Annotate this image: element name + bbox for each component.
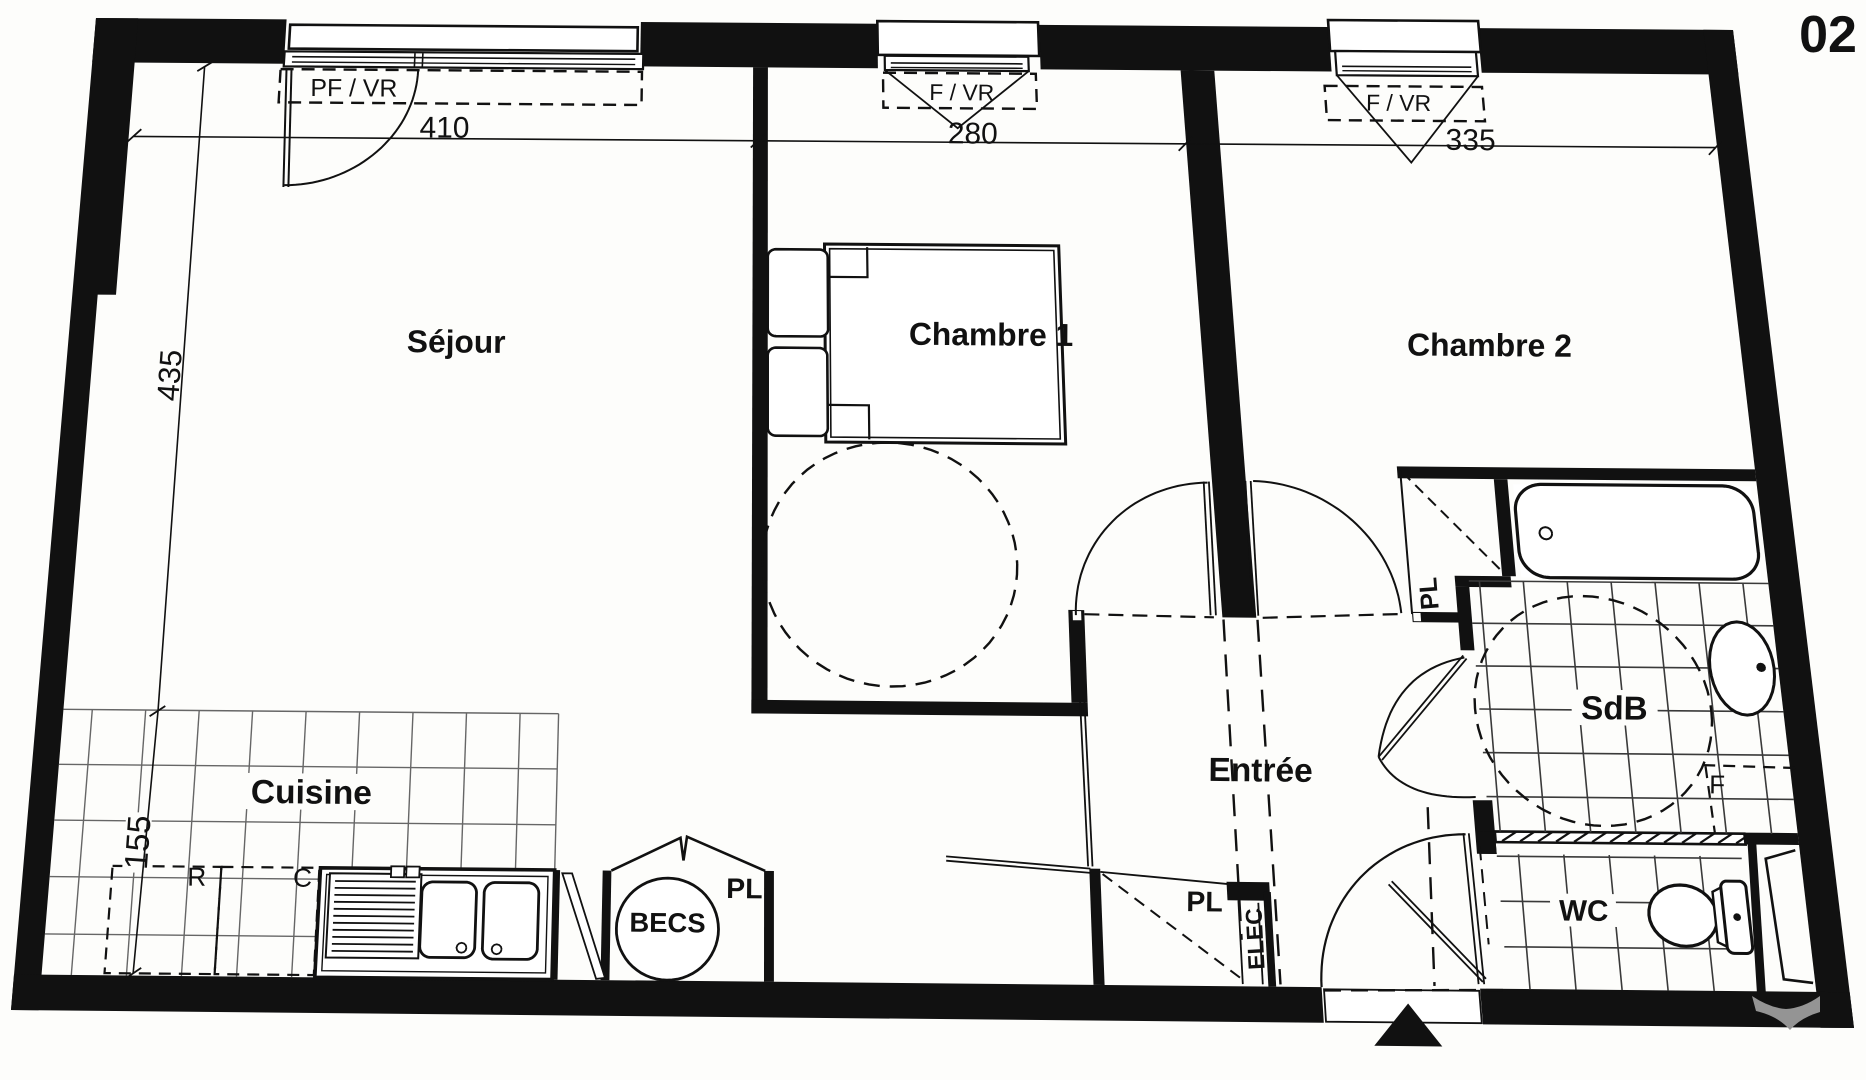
svg-text:335: 335 <box>1445 124 1495 157</box>
svg-text:PL: PL <box>726 873 763 905</box>
svg-text:C: C <box>293 863 312 893</box>
svg-text:ELEC: ELEC <box>1240 907 1269 970</box>
svg-text:F / VR: F / VR <box>1366 89 1431 115</box>
svg-text:02: 02 <box>1799 6 1857 64</box>
svg-text:BECS: BECS <box>629 907 705 939</box>
svg-text:410: 410 <box>419 111 469 144</box>
svg-text:R: R <box>187 862 206 892</box>
svg-text:Entrée: Entrée <box>1208 752 1313 790</box>
svg-text:PL: PL <box>1186 886 1223 918</box>
svg-text:280: 280 <box>948 117 998 150</box>
svg-text:Chambre 1: Chambre 1 <box>909 316 1074 353</box>
svg-text:Cuisine: Cuisine <box>251 774 372 812</box>
svg-text:Chambre 2: Chambre 2 <box>1407 326 1572 363</box>
svg-text:F: F <box>1709 769 1725 799</box>
svg-text:SdB: SdB <box>1581 690 1648 728</box>
svg-text:PL: PL <box>1414 576 1444 611</box>
svg-text:F / VR: F / VR <box>929 79 994 105</box>
svg-text:Séjour: Séjour <box>407 323 506 360</box>
svg-text:155: 155 <box>118 814 158 871</box>
svg-text:WC: WC <box>1559 894 1609 927</box>
svg-text:PF / VR: PF / VR <box>310 75 397 103</box>
